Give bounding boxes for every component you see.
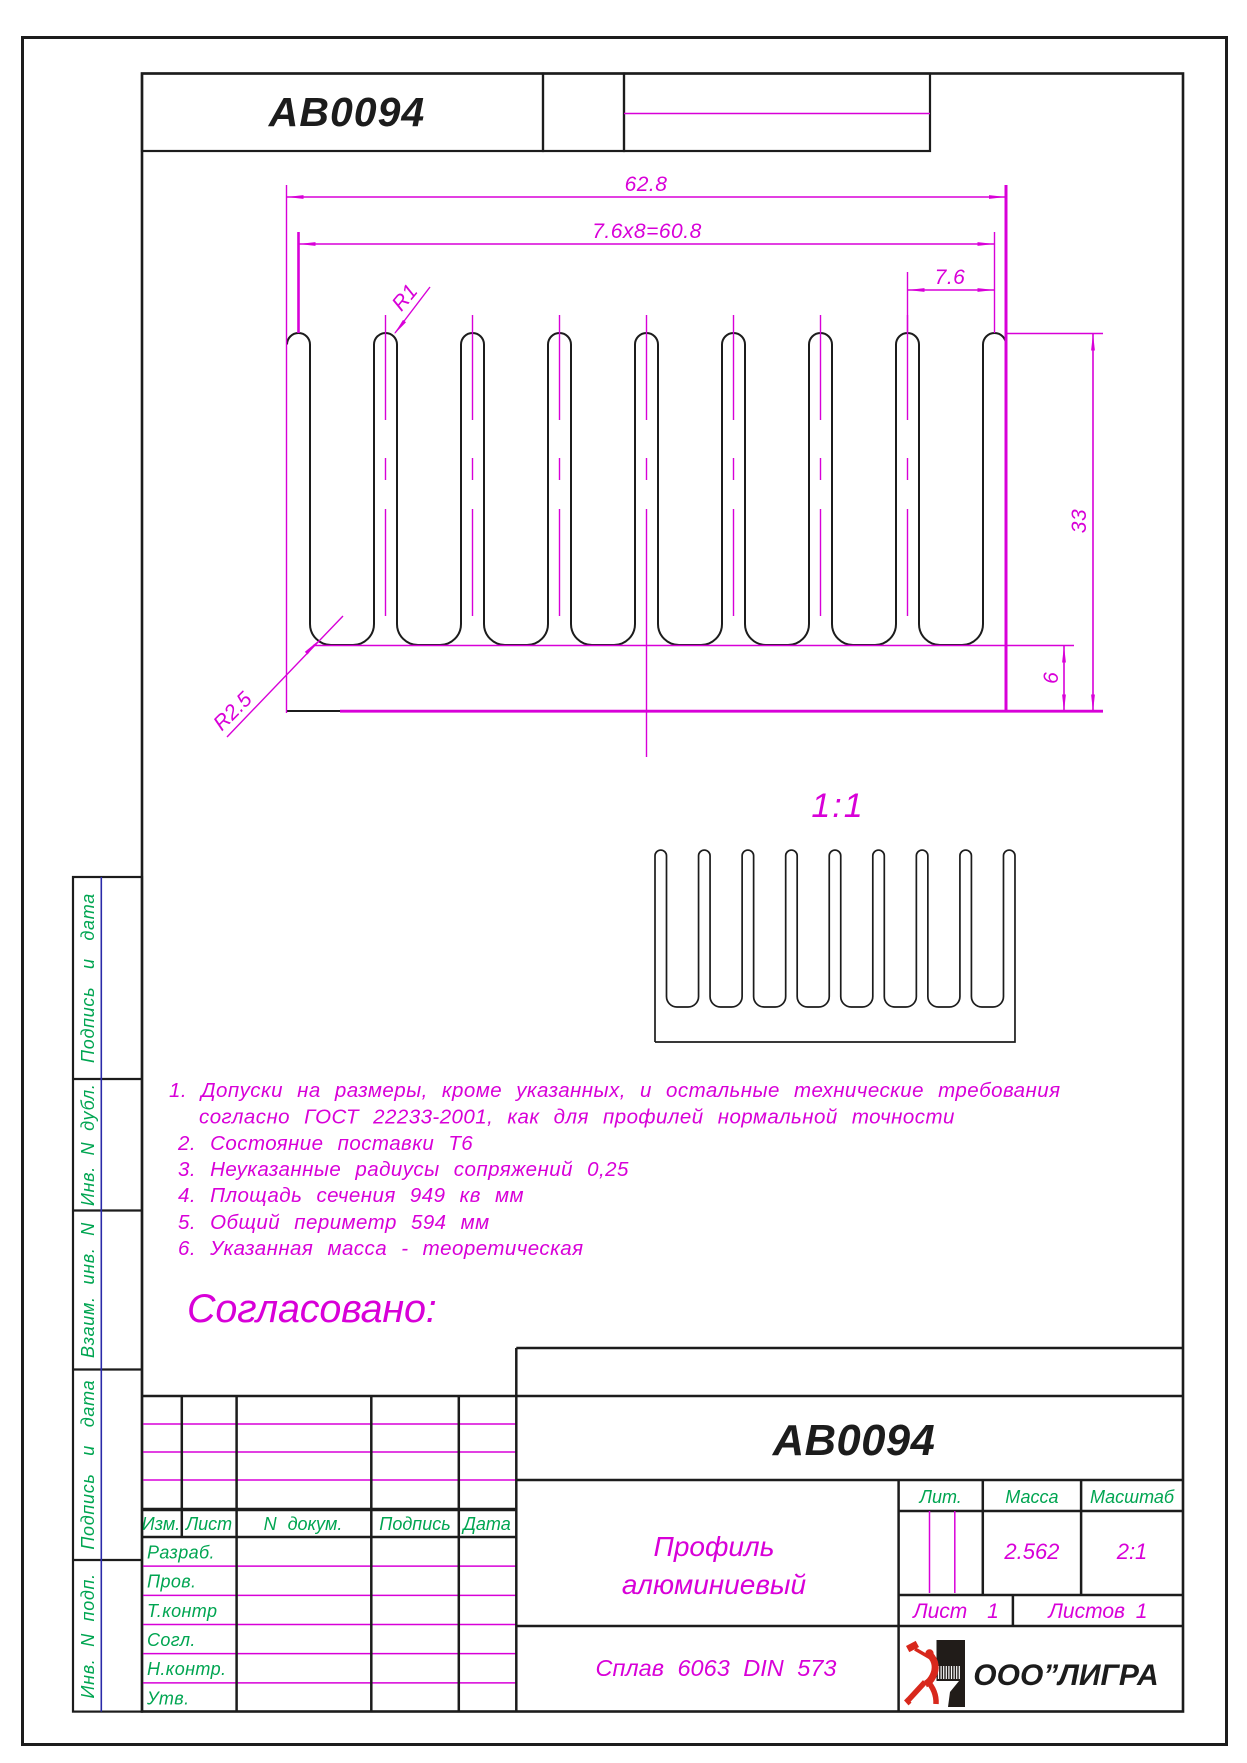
- svg-text:Н.контр.: Н.контр.: [147, 1659, 226, 1679]
- svg-text:АВ0094: АВ0094: [772, 1417, 936, 1465]
- svg-text:Лит.: Лит.: [919, 1487, 962, 1507]
- svg-text:5. Общий периметр 594 мм: 5. Общий периметр 594 мм: [178, 1211, 490, 1234]
- svg-text:7.6: 7.6: [935, 266, 966, 289]
- svg-text:2.562: 2.562: [1003, 1539, 1059, 1564]
- svg-text:Разраб.: Разраб.: [147, 1543, 215, 1563]
- svg-text:Изм.: Изм.: [142, 1514, 180, 1534]
- svg-text:3. Неуказанные радиусы сопряже: 3. Неуказанные радиусы сопряжений 0,25: [178, 1158, 629, 1181]
- svg-text:согласно ГОСТ 22233-2001, как: согласно ГОСТ 22233-2001, как для профил…: [199, 1106, 955, 1129]
- svg-text:62.8: 62.8: [625, 173, 668, 196]
- svg-text:Т.контр: Т.контр: [147, 1601, 217, 1621]
- svg-text:Масштаб: Масштаб: [1090, 1487, 1175, 1507]
- svg-text:Масса: Масса: [1005, 1487, 1058, 1507]
- svg-text:Лист: Лист: [185, 1514, 232, 1534]
- svg-text:алюминиевый: алюминиевый: [622, 1569, 807, 1600]
- svg-text:Инв. N подп.: Инв. N подп.: [78, 1573, 98, 1698]
- svg-text:Профиль: Профиль: [654, 1531, 775, 1562]
- svg-text:Согласовано:: Согласовано:: [187, 1287, 437, 1331]
- svg-text:Инв. N дубл.: Инв. N дубл.: [78, 1083, 98, 1206]
- svg-text:ООО”ЛИГРА: ООО”ЛИГРА: [973, 1659, 1158, 1692]
- svg-text:Лист 1: Лист 1: [911, 1600, 999, 1623]
- svg-text:33: 33: [1068, 509, 1091, 533]
- svg-text:Согл.: Согл.: [147, 1630, 196, 1650]
- svg-text:1:1: 1:1: [811, 787, 864, 825]
- svg-text:1. Допуски на размеры, кроме у: 1. Допуски на размеры, кроме указанных, …: [169, 1079, 1061, 1102]
- svg-text:Подпись и дата: Подпись и дата: [78, 893, 98, 1063]
- svg-text:2. Состояние поставки Т6: 2. Состояние поставки Т6: [177, 1132, 473, 1155]
- svg-text:6. Указанная масса - теоретиче: 6. Указанная масса - теоретическая: [178, 1237, 583, 1260]
- svg-text:Подпись: Подпись: [379, 1514, 450, 1534]
- svg-text:7.6х8=60.8: 7.6х8=60.8: [592, 220, 702, 243]
- svg-text:Подпись и дата: Подпись и дата: [78, 1380, 98, 1550]
- svg-text:Дата: Дата: [461, 1514, 511, 1534]
- svg-text:Пров.: Пров.: [147, 1572, 196, 1592]
- svg-text:6: 6: [1040, 672, 1063, 684]
- svg-text:2:1: 2:1: [1116, 1539, 1148, 1564]
- svg-text:Взаим. инв. N: Взаим. инв. N: [78, 1222, 98, 1358]
- svg-text:Листов 1: Листов 1: [1047, 1600, 1148, 1623]
- svg-text:Утв.: Утв.: [146, 1688, 190, 1708]
- svg-text:N докум.: N докум.: [264, 1514, 343, 1534]
- svg-text:4. Площадь сечения 949 кв мм: 4. Площадь сечения 949 кв мм: [178, 1184, 524, 1207]
- svg-text:Сплав 6063 DIN 573: Сплав 6063 DIN 573: [595, 1655, 836, 1681]
- svg-text:АВ0094: АВ0094: [268, 89, 425, 135]
